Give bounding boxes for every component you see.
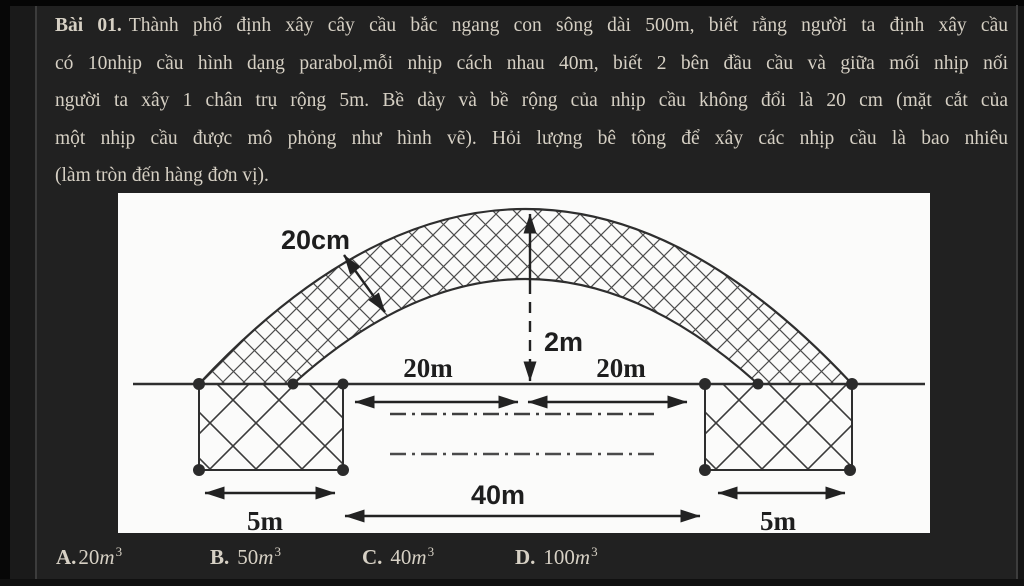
answer-value: 40 <box>390 545 411 569</box>
bridge-diagram-panel: 20cm 2m 20m 20m 40m 5m 5m <box>118 193 930 533</box>
problem-line: (làm tròn đến hàng đơn vị). <box>55 157 1008 195</box>
top-edge-strip <box>0 0 1024 6</box>
problem-line: người ta xây 1 chân trụ rộng 5m. Bề dày … <box>55 82 1008 120</box>
answer-value: 50 <box>237 545 258 569</box>
problem-line: Bài 01.Thành phố định xây cây cầu bắc ng… <box>55 7 1008 45</box>
left-edge-strip <box>0 0 10 586</box>
answer-unit: m <box>258 545 273 569</box>
pier-right-width-label: 5m <box>760 506 797 533</box>
bottom-edge-strip <box>0 579 1024 586</box>
answer-option-c[interactable]: C.40m3 <box>362 545 434 570</box>
answer-letter: B. <box>210 545 229 569</box>
answer-row: A.20m3 B.50m3 C.40m3 D.100m3 <box>0 545 1024 579</box>
answer-exponent: 3 <box>591 544 598 559</box>
answer-option-a[interactable]: A.20m3 <box>56 545 122 570</box>
answer-option-d[interactable]: D.100m3 <box>515 545 598 570</box>
rise-label: 2m <box>544 327 583 357</box>
document-page: Bài 01.Thành phố định xây cây cầu bắc ng… <box>0 0 1024 586</box>
answer-exponent: 3 <box>428 544 435 559</box>
pier-left-block <box>199 384 343 470</box>
pier-right-block <box>705 384 852 470</box>
answer-option-b[interactable]: B.50m3 <box>210 545 281 570</box>
bridge-diagram: 20cm 2m 20m 20m 40m 5m 5m <box>118 193 930 533</box>
answer-exponent: 3 <box>274 544 281 559</box>
problem-statement: Bài 01.Thành phố định xây cây cầu bắc ng… <box>55 7 1008 195</box>
thickness-label: 20cm <box>281 225 350 255</box>
problem-line: có 10nhịp cầu hình dạng parabol,mỗi nhịp… <box>55 45 1008 83</box>
span-label: 40m <box>471 480 525 510</box>
answer-unit: m <box>575 545 590 569</box>
answer-letter: D. <box>515 545 535 569</box>
half-span-left-label: 20m <box>403 353 453 383</box>
answer-value: 20 <box>78 545 99 569</box>
half-span-right-label: 20m <box>596 353 646 383</box>
answer-letter: A. <box>56 545 76 569</box>
left-gutter <box>10 6 37 586</box>
answer-exponent: 3 <box>116 544 123 559</box>
answer-unit: m <box>411 545 426 569</box>
answer-unit: m <box>99 545 114 569</box>
pier-left-width-label: 5m <box>247 506 284 533</box>
right-margin-strip <box>1018 6 1024 586</box>
problem-number-label: Bài 01. <box>55 15 122 36</box>
answer-value: 100 <box>543 545 575 569</box>
problem-line-text: Thành phố định xây cây cầu bắc ngang con… <box>129 15 1008 36</box>
answer-letter: C. <box>362 545 382 569</box>
problem-line: một nhịp cầu được mô phỏng như hình vẽ).… <box>55 120 1008 158</box>
